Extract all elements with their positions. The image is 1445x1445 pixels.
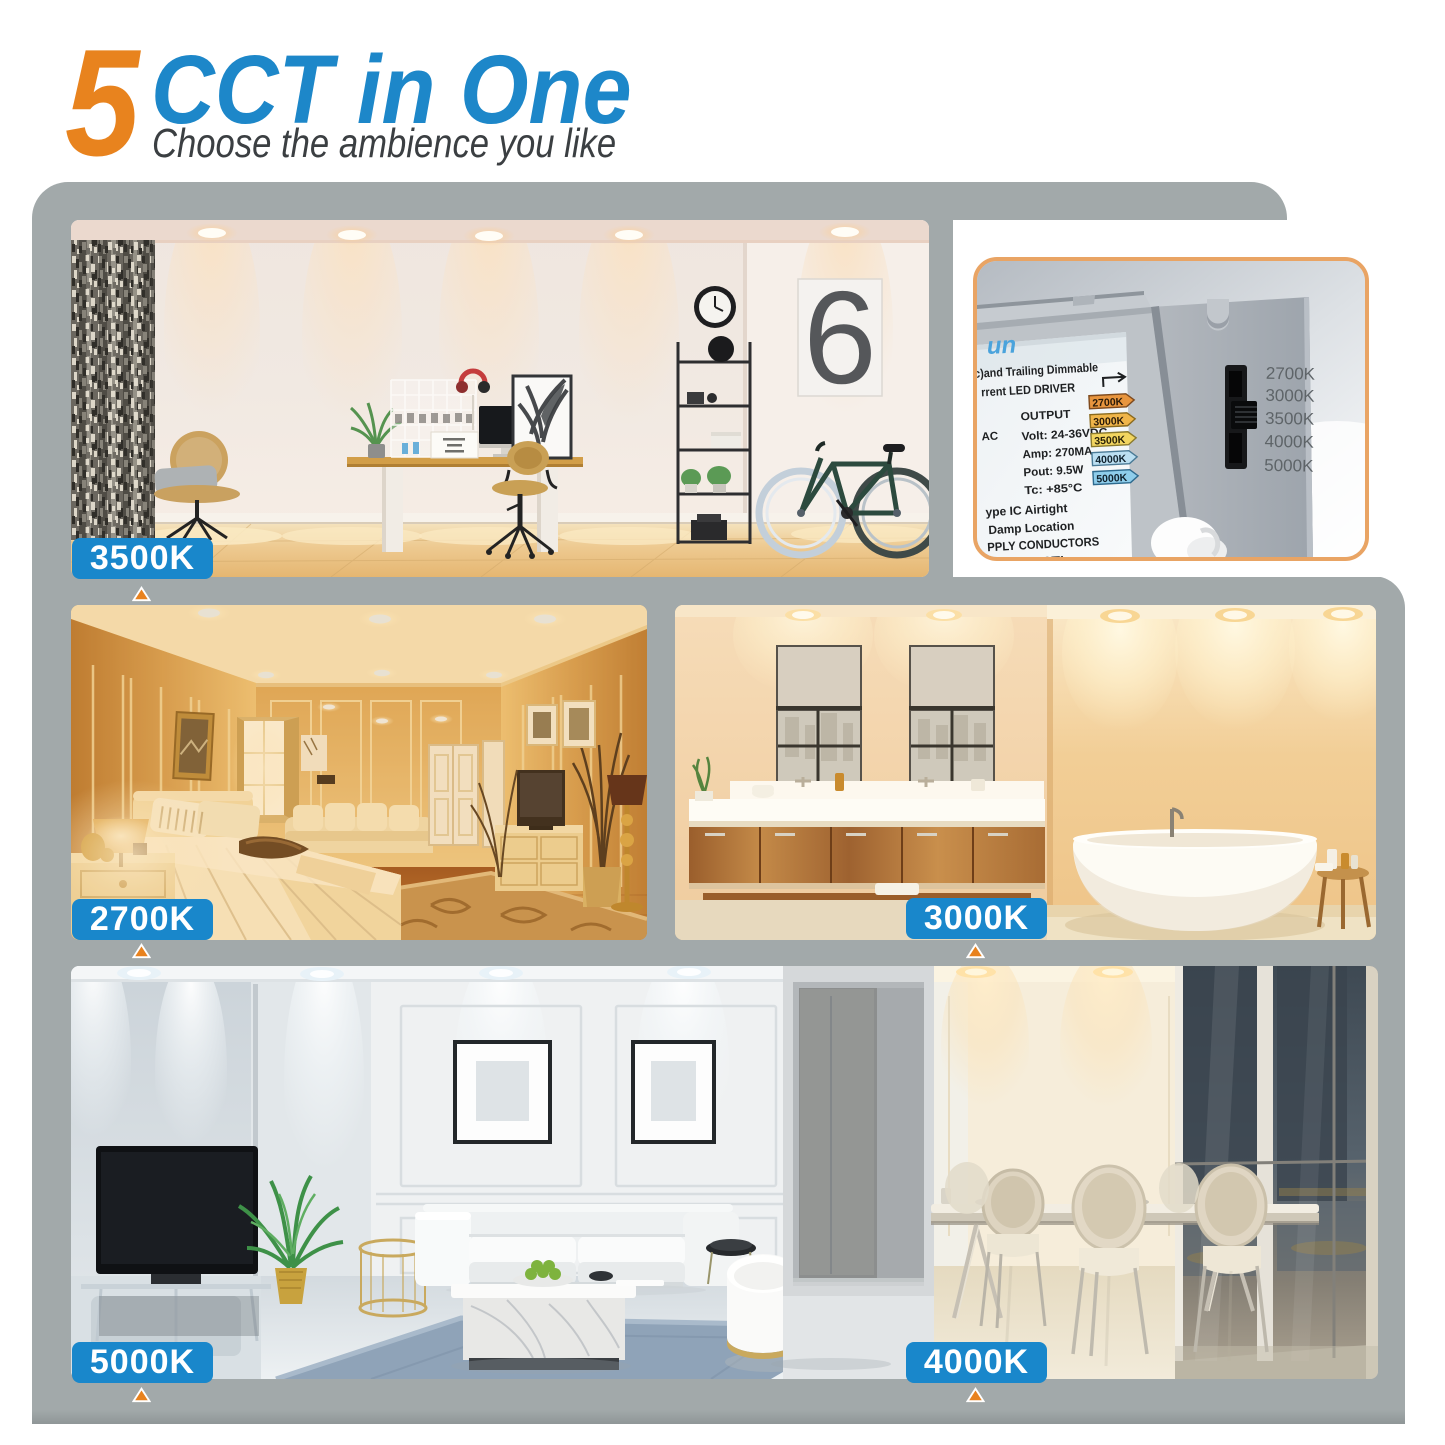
svg-text:3000K: 3000K <box>1093 415 1125 429</box>
svg-text:6: 6 <box>803 264 876 411</box>
svg-text:un: un <box>986 331 1017 359</box>
svg-text:3500K: 3500K <box>1094 434 1126 448</box>
svg-text:4000K: 4000K <box>1095 453 1127 467</box>
svg-text:3000K: 3000K <box>1265 386 1315 406</box>
svg-text:2700K: 2700K <box>1092 396 1124 410</box>
svg-text:5000K: 5000K <box>1096 472 1128 486</box>
svg-text:3500K: 3500K <box>1265 409 1315 429</box>
svg-text:AC: AC <box>981 431 998 444</box>
svg-text:5000K: 5000K <box>1264 456 1314 476</box>
svg-text:4000K: 4000K <box>1264 432 1314 452</box>
svg-text:2700K: 2700K <box>1266 364 1316 384</box>
